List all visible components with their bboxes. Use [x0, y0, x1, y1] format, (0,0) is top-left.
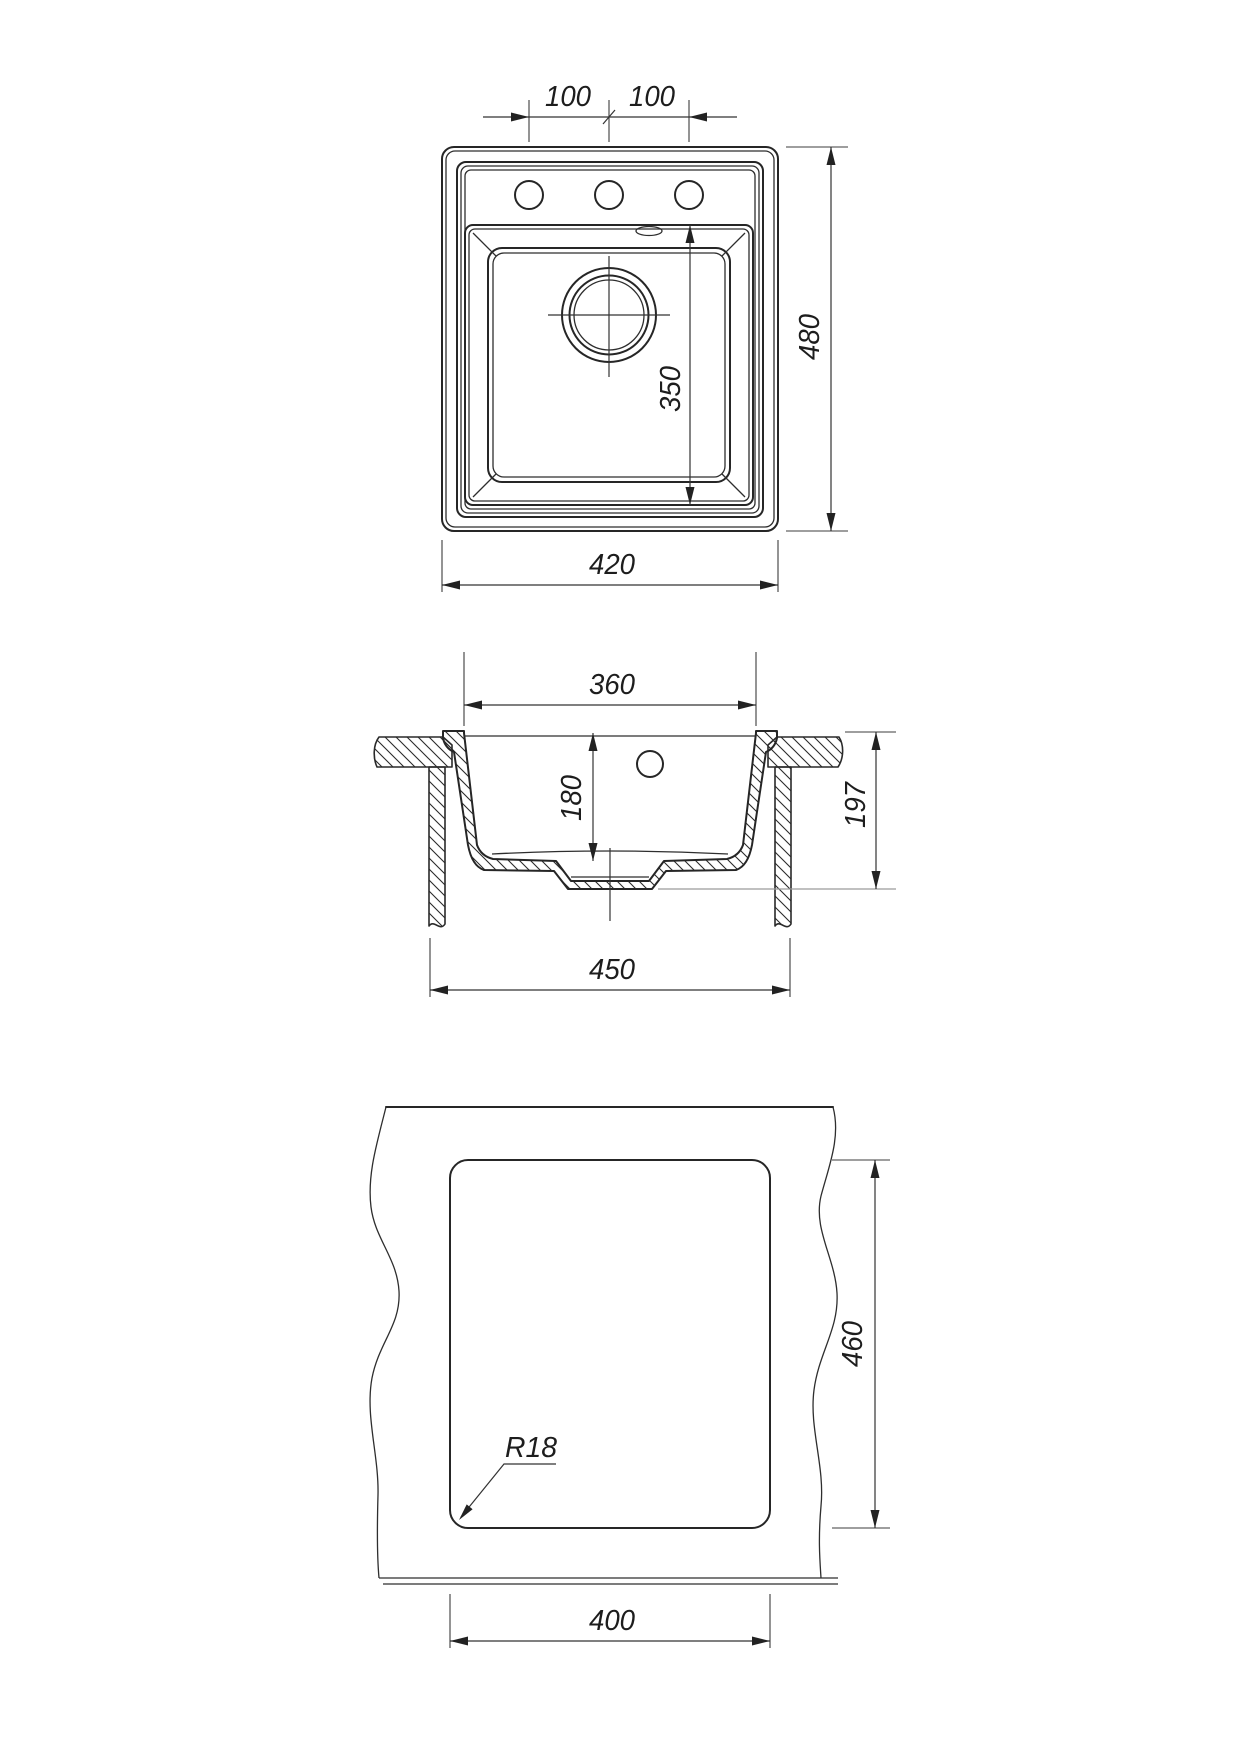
- dim-197-arrow-bottom: [872, 871, 881, 889]
- dim-360-arrow-right: [738, 701, 756, 710]
- dim-400-arrow-left: [450, 1637, 468, 1646]
- dim-label-480: 480: [794, 314, 826, 360]
- countertop-bottom-edge: [379, 1578, 838, 1584]
- countertop-slab-left: [374, 737, 452, 767]
- dim-label-400: 400: [589, 1605, 635, 1637]
- dim-450-arrow-left: [430, 986, 448, 995]
- rim-edge-third-line: [465, 170, 755, 509]
- dim-100-arrow-left: [511, 113, 529, 122]
- dim-400-arrow-right: [752, 1637, 770, 1646]
- dim-360-arrow-left: [464, 701, 482, 710]
- dim-cutout-width: 400: [450, 1594, 770, 1648]
- dim-overall-width: 420: [442, 540, 778, 592]
- drawing-sheet: 100 100 480 350 420: [0, 0, 1241, 1754]
- faucet-hole-right: [675, 181, 703, 209]
- dim-label-360: 360: [589, 669, 635, 701]
- cutout-outline: [450, 1160, 770, 1528]
- overflow-hole-top: [636, 227, 662, 236]
- dim-label-180: 180: [556, 775, 588, 821]
- dim-350-arrow-bottom: [686, 487, 695, 505]
- dim-hole-spacing: 100 100: [483, 81, 737, 142]
- r18-leader-line: [461, 1464, 556, 1517]
- dim-label-350: 350: [655, 366, 687, 412]
- dim-cabinet-width: 450: [430, 938, 790, 997]
- dim-bowl-length: 350: [655, 225, 695, 505]
- dim-overall-depth: 480: [786, 147, 848, 531]
- dim-label-460: 460: [837, 1321, 869, 1367]
- dim-label-100-left: 100: [545, 81, 591, 113]
- cabinet-wall-left: [429, 767, 445, 927]
- sink-technical-drawing: 100 100 480 350 420: [0, 0, 1241, 1754]
- countertop-left-break-line: [370, 1107, 399, 1578]
- dim-350-arrow-top: [686, 225, 695, 243]
- dim-corner-radius: R18: [459, 1432, 557, 1520]
- dim-label-100-right: 100: [629, 81, 675, 113]
- dim-100-arrow-right: [689, 113, 707, 122]
- dim-460-arrow-top: [871, 1160, 880, 1178]
- dim-label-r18: R18: [505, 1432, 557, 1464]
- countertop-slab-right: [768, 737, 843, 767]
- r18-leader-arrow: [459, 1504, 473, 1520]
- cutout-view: R18 460 400: [370, 1107, 890, 1648]
- faucet-hole-left: [515, 181, 543, 209]
- dim-label-450: 450: [589, 954, 635, 986]
- dim-480-arrow-top: [827, 147, 836, 165]
- dim-label-420: 420: [589, 549, 635, 581]
- dim-460-arrow-bottom: [871, 1510, 880, 1528]
- overflow-hole-section: [637, 751, 663, 777]
- rim-edge: [457, 162, 763, 517]
- dim-bowl-width: 360: [464, 652, 756, 726]
- dim-bowl-depth: 180: [556, 733, 598, 861]
- dim-197-arrow-top: [872, 732, 881, 750]
- dim-480-arrow-bottom: [827, 513, 836, 531]
- dim-420-arrow-right: [760, 581, 778, 590]
- rim-edge-inner-line: [461, 166, 759, 513]
- faucet-hole-center: [595, 181, 623, 209]
- drain-centerlines: [548, 256, 670, 377]
- dim-label-197: 197: [840, 780, 872, 828]
- dim-180-arrow-bottom: [589, 843, 598, 861]
- top-view: 100 100 480 350 420: [442, 81, 848, 592]
- dim-450-arrow-right: [772, 986, 790, 995]
- cabinet-wall-right: [775, 767, 791, 927]
- countertop-right-break-line: [813, 1107, 837, 1578]
- dim-420-arrow-left: [442, 581, 460, 590]
- dim-cutout-height: 460: [832, 1160, 890, 1528]
- section-view: 360 180 197 450: [374, 652, 896, 997]
